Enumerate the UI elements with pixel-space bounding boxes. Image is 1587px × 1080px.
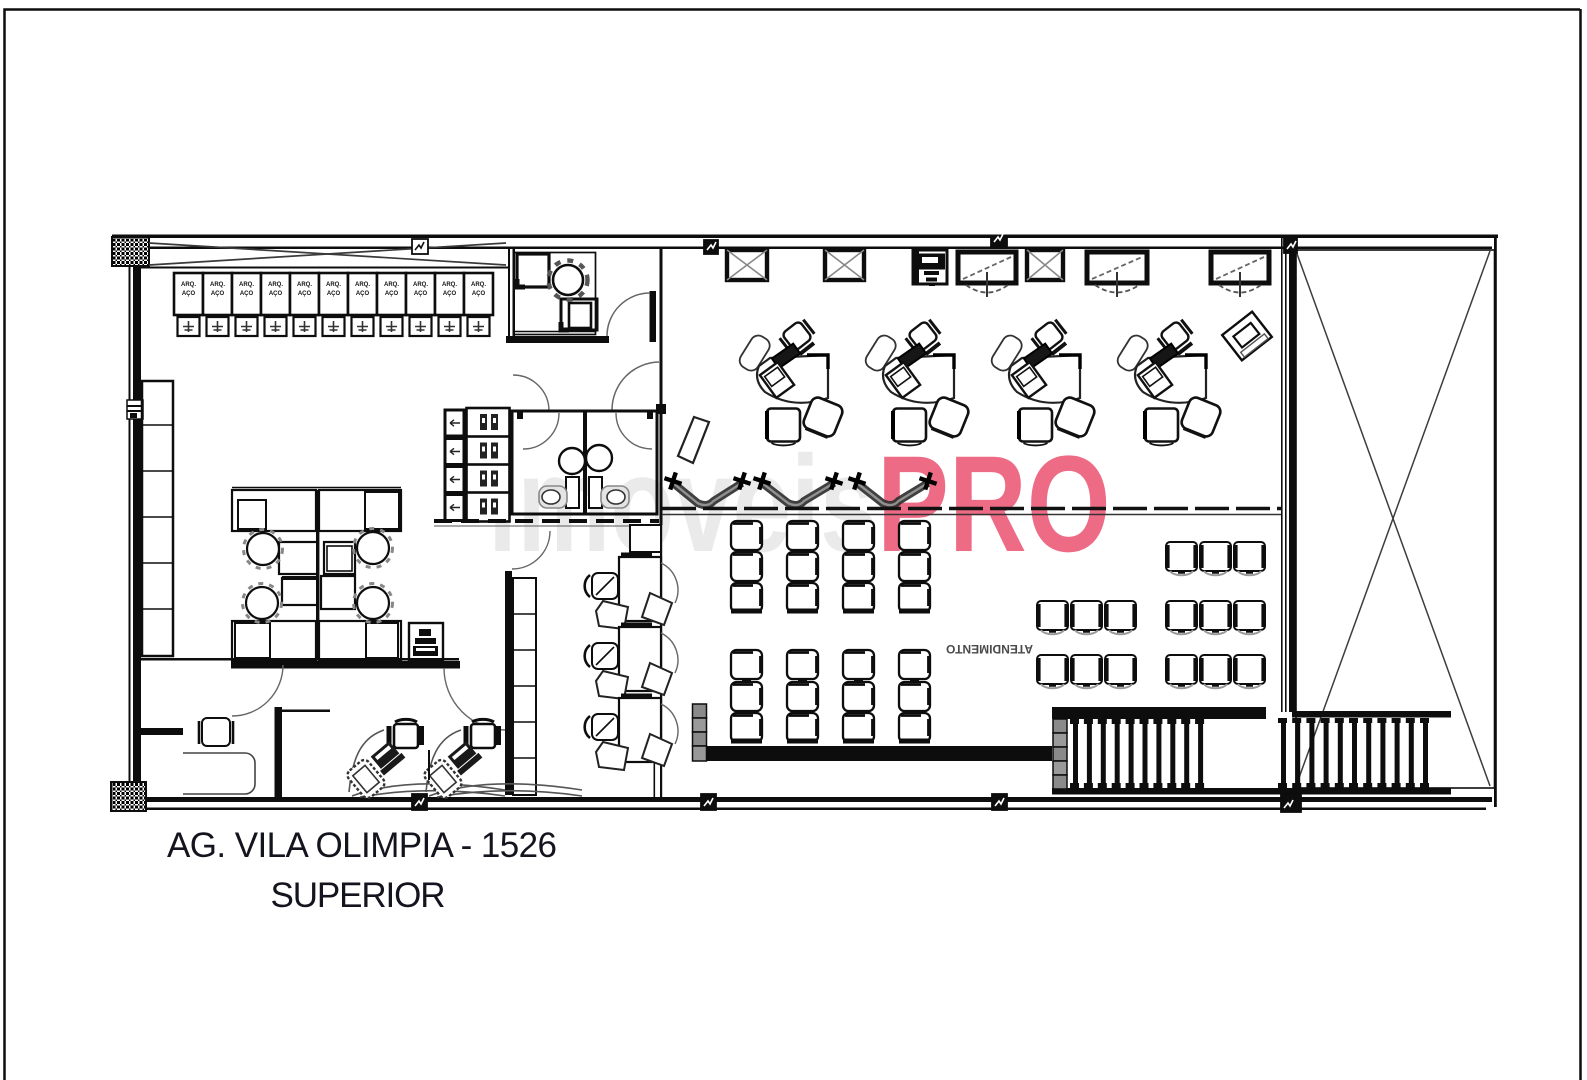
svg-text:ARQ.: ARQ. (442, 282, 457, 288)
svg-text:AÇO: AÇO (327, 291, 341, 297)
svg-text:ARQ.: ARQ. (239, 282, 254, 288)
svg-text:AÇO: AÇO (356, 291, 370, 297)
svg-text:AÇO: AÇO (443, 291, 457, 297)
svg-text:AÇO: AÇO (240, 291, 254, 297)
svg-text:ATENDIMENTO: ATENDIMENTO (946, 642, 1033, 656)
svg-text:SUPERIOR: SUPERIOR (271, 876, 446, 915)
svg-text:AÇO: AÇO (182, 291, 196, 297)
svg-text:AÇO: AÇO (385, 291, 399, 297)
svg-text:AG. VILA OLIMPIA - 1526: AG. VILA OLIMPIA - 1526 (167, 826, 557, 865)
svg-text:AÇO: AÇO (211, 291, 225, 297)
svg-text:ARQ.: ARQ. (268, 282, 283, 288)
svg-text:ARQ.: ARQ. (355, 282, 370, 288)
svg-text:ARQ.: ARQ. (471, 282, 486, 288)
svg-text:ARQ.: ARQ. (326, 282, 341, 288)
svg-text:ARQ.: ARQ. (210, 282, 225, 288)
svg-text:AÇO: AÇO (269, 291, 283, 297)
svg-text:ARQ.: ARQ. (384, 282, 399, 288)
svg-text:AÇO: AÇO (472, 291, 486, 297)
svg-text:ARQ.: ARQ. (413, 282, 428, 288)
svg-text:AÇO: AÇO (414, 291, 428, 297)
svg-text:AÇO: AÇO (298, 291, 312, 297)
svg-text:ARQ.: ARQ. (297, 282, 312, 288)
svg-text:ARQ.: ARQ. (181, 282, 196, 288)
